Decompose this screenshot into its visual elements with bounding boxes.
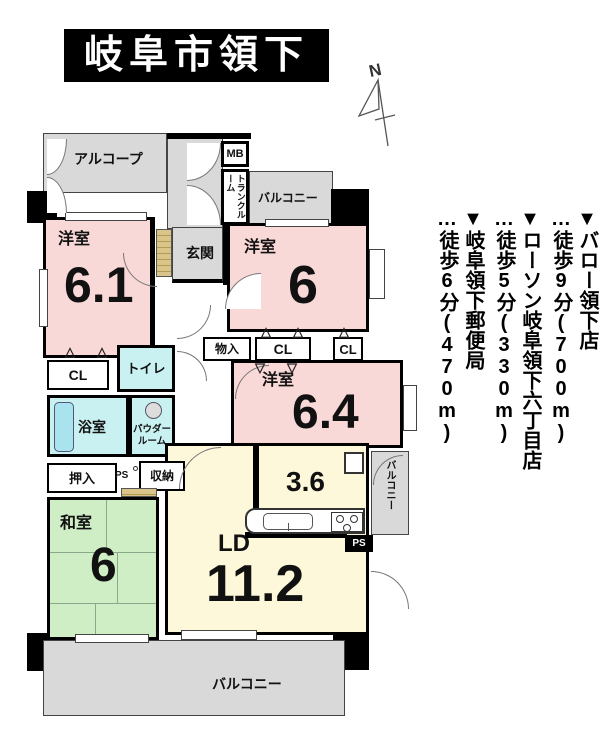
window [265,219,329,227]
room-size: 6.4 [292,389,359,437]
room-label: PS [352,539,365,549]
kitchen-sink [263,513,313,530]
page-title-box: 岐阜市領下 [64,29,329,82]
closet-cl-center: CL [255,337,311,361]
step-strip [121,488,157,497]
closet-monoire: 物入 [203,337,251,361]
room-label: 洋室 [58,232,90,248]
window [181,630,257,640]
room-bath: 浴室 [47,395,129,457]
room-label: 収納 [141,463,183,489]
landmark-walk: …徒歩5分(330m) [491,208,517,708]
landmark-name: ▼ローソン岐阜領下六丁目店 [517,208,543,708]
burner-icon [336,515,344,523]
bathtub [54,402,74,452]
kitchen-divider-wall [253,443,259,510]
closet-mark: △△ [261,325,325,338]
room-meter-box: MB [221,141,249,167]
page-title: 岐阜市領下 [84,36,309,75]
closet-cl-left: CL [47,360,109,390]
door-arc [371,571,409,609]
tatami-line [50,603,156,604]
faucet-line [288,523,289,531]
wall-segment [167,133,251,139]
kitchen-size: 3.6 [286,468,325,496]
balcony-bottom: バルコニー [43,640,345,716]
closet-cl-right: CL [333,337,363,361]
room-genkan: 玄関 [172,227,223,283]
room-label: CL [257,339,309,359]
door-arc [177,305,211,339]
landmark-list: ▼バロー領下店 …徒歩9分(700m) ▼ローソン岐阜領下六丁目店 …徒歩5分(… [424,208,600,708]
window [369,249,385,299]
room-label: トランクルーム [225,174,246,220]
room-size: 11.2 [206,558,304,610]
window [75,634,149,643]
room-label: CL [49,362,107,388]
closet-oshiire: 押入 [47,463,117,493]
ps-circle-icon [133,466,138,471]
landmark-item: ▼バロー領下店 …徒歩9分(700m) [548,208,600,708]
refrigerator-space [344,452,364,474]
room-label: バルコニー [258,192,318,204]
burner-icon [343,524,351,532]
window [39,269,48,327]
landmark-item: ▼岐阜領下郵便局 …徒歩6分(470m) [434,208,486,708]
sink-icon [145,402,162,419]
room-label: バルコニー [212,677,282,691]
landmark-walk: …徒歩6分(470m) [434,208,460,708]
room-label: アルコープ [74,152,143,166]
burner-icon [350,515,358,523]
landmark-walk: …徒歩9分(700m) [548,208,574,708]
tatami-line [117,552,118,603]
room-washitsu: 和室 6 [47,497,159,640]
balcony-top: バルコニー [249,171,333,225]
room-label: 洋室 [244,240,276,256]
room-label: 押入 [49,465,115,491]
room-label: MB [224,144,246,164]
room-size: 6 [288,258,318,312]
room-label: 物入 [205,339,249,359]
room-size: 6 [90,542,117,590]
room-label: 和室 [60,516,92,532]
ps-left: PS [115,465,141,483]
room-label: 玄関 [186,246,214,260]
room-size: 6.1 [64,260,134,310]
landmark-item: ▼ローソン岐阜領下六丁目店 …徒歩5分(330m) [491,208,543,708]
room-label: 浴室 [78,420,106,434]
closet-mark: △ [339,325,371,338]
landmark-name: ▼バロー領下店 [574,208,600,708]
floorplan-page: 岐阜市領下 N ▼バロー領下店 …徒歩9分(700m) ▼ローソン岐阜領下六丁目… [0,0,602,750]
genkan-step [156,229,172,277]
stove [331,512,363,532]
ps-right: PS [345,535,373,552]
room-trunk: トランクルーム [221,169,249,225]
closet-mark: ▽▽ [255,361,319,374]
kitchen-counter [245,508,365,534]
room-bedroom-61: 洋室 6.1 [43,217,155,358]
closet-mark: △△ [65,345,129,358]
landmark-name: ▼岐阜領下郵便局 [460,208,486,708]
pillar [331,189,369,225]
north-label: N [367,60,383,81]
window [65,212,147,221]
floor-plan: アルコープ MB トランクルーム バルコニー 洋室 6.1 玄関 [27,133,427,723]
room-label: CL [335,339,361,359]
window [403,385,417,431]
room-label: PS [115,470,128,481]
